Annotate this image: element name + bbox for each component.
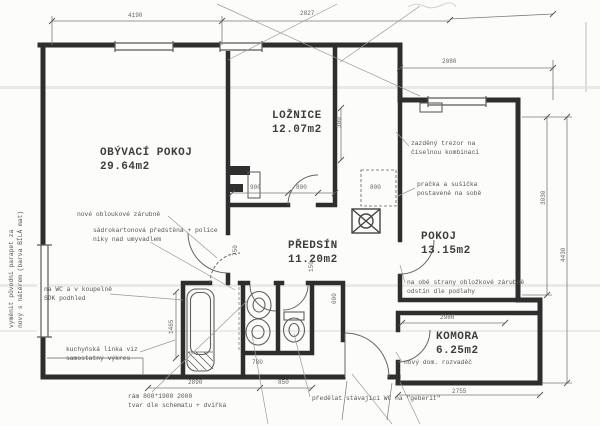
annotation-line: sádrokartonová předstěna + police (93, 227, 218, 236)
annotation-line: tvar dle schematu + dvířka (128, 402, 226, 411)
room-label: KOMORA6.25m2 (436, 331, 479, 359)
annotation: zazděný trezor načíselnou kombinaci (411, 140, 479, 157)
annotation-line: na WC a v koupelně (44, 286, 112, 295)
annotation: pračka a sušičkapostavené na sobě (417, 181, 481, 198)
annotation-line: zazděný trezor na (411, 140, 479, 149)
annotation-line: odstín dle podlahy (407, 288, 524, 297)
annotation-line: předělat stávající WC na "geberit" (312, 395, 440, 404)
annotation-line: pračka a sušička (417, 181, 481, 190)
room-area: 29.64m2 (100, 161, 192, 175)
annotation-line: samostatný výkres (66, 355, 138, 364)
dimension-label: 150 (308, 261, 315, 272)
dimension-label: 4190 (128, 12, 142, 19)
labels-layer: OBÝVACÍ POKOJ29.64m2LOŽNICE12.07m2PŘEDSÍ… (0, 0, 600, 426)
dimension-label: 3030 (540, 191, 547, 205)
annotation-line: vyměnit původní parapet za (8, 211, 17, 328)
dimension-label: 800 (370, 184, 381, 191)
dimension-label: 850 (278, 379, 289, 386)
annotation-line: na obě strany obložkové zárubně (407, 279, 524, 288)
annotation: sádrokartonová předstěna + policeniky na… (93, 227, 218, 244)
room-label: LOŽNICE12.07m2 (272, 110, 322, 138)
room-area: 13.15m2 (421, 245, 471, 259)
room-name: PŘEDSÍN (288, 240, 338, 254)
dimension-label: 900 (250, 184, 261, 191)
annotation-line: SDK podhled (44, 295, 112, 304)
dimension-label: 750 (232, 245, 239, 256)
annotation: rám 800*1900 2000tvar dle schematu + dví… (128, 393, 226, 410)
dimension-label: 4430 (560, 248, 567, 262)
floor-plan: OBÝVACÍ POKOJ29.64m2LOŽNICE12.07m2PŘEDSÍ… (0, 0, 600, 426)
annotation-line: číselnou kombinaci (411, 149, 479, 158)
dimension-label: 2980 (440, 314, 454, 321)
dimension-label: 300 (336, 117, 343, 128)
room-name: POKOJ (421, 231, 471, 245)
room-area: 6.25m2 (436, 345, 479, 359)
annotation: kuchyňská linka vizsamostatný výkres (66, 346, 138, 363)
annotation: vyměnit původní parapet zanový s nátěrem… (8, 211, 25, 328)
annotation: na WC a v koupelněSDK podhled (44, 286, 112, 303)
annotation: předělat stávající WC na "geberit" (312, 395, 440, 404)
dimension-label: 2827 (300, 10, 314, 17)
annotation-line: nový s nátěrem (barva BÍLÁ mat) (17, 211, 26, 328)
annotation: na obě strany obložkové zárubněodstín dl… (407, 279, 524, 296)
room-name: LOŽNICE (272, 110, 322, 124)
dimension-label: 2755 (452, 388, 466, 395)
dimension-label: 600 (331, 293, 338, 304)
annotation: nové obloukové zárubně (77, 211, 160, 220)
room-name: OBÝVACÍ POKOJ (100, 147, 192, 161)
dimension-label: 1465 (168, 320, 175, 334)
annotation-line: postavené na sobě (417, 190, 481, 199)
dimension-label: 800 (296, 184, 307, 191)
annotation-line: nové obloukové zárubně (77, 211, 160, 220)
annotation-line: niky nad umyvadlem (93, 236, 218, 245)
annotation-line: rám 800*1900 2000 (128, 393, 226, 402)
dimension-label: 780 (252, 359, 263, 366)
room-label: OBÝVACÍ POKOJ29.64m2 (100, 147, 192, 175)
annotation-line: kuchyňská linka viz (66, 346, 138, 355)
room-label: POKOJ13.15m2 (421, 231, 471, 259)
dimension-label: 2890 (188, 379, 202, 386)
annotation-line: nový dom. rozvaděč (404, 359, 472, 368)
annotation: nový dom. rozvaděč (404, 359, 472, 368)
dimension-label: 2080 (442, 58, 456, 65)
room-name: KOMORA (436, 331, 479, 345)
room-area: 12.07m2 (272, 124, 322, 138)
